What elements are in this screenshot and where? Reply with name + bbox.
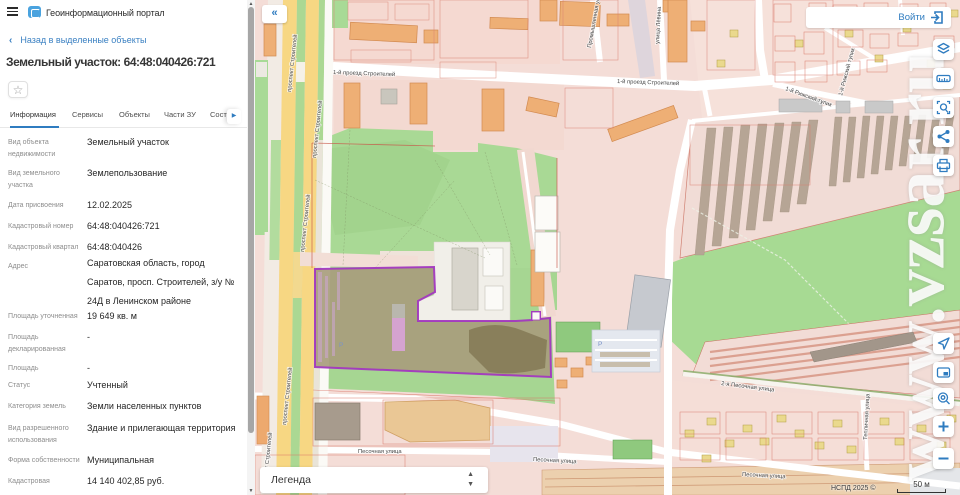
svg-text:Р: Р (339, 342, 343, 349)
svg-text:Песочная улица: Песочная улица (358, 449, 402, 455)
svg-text:Р: Р (598, 341, 602, 348)
